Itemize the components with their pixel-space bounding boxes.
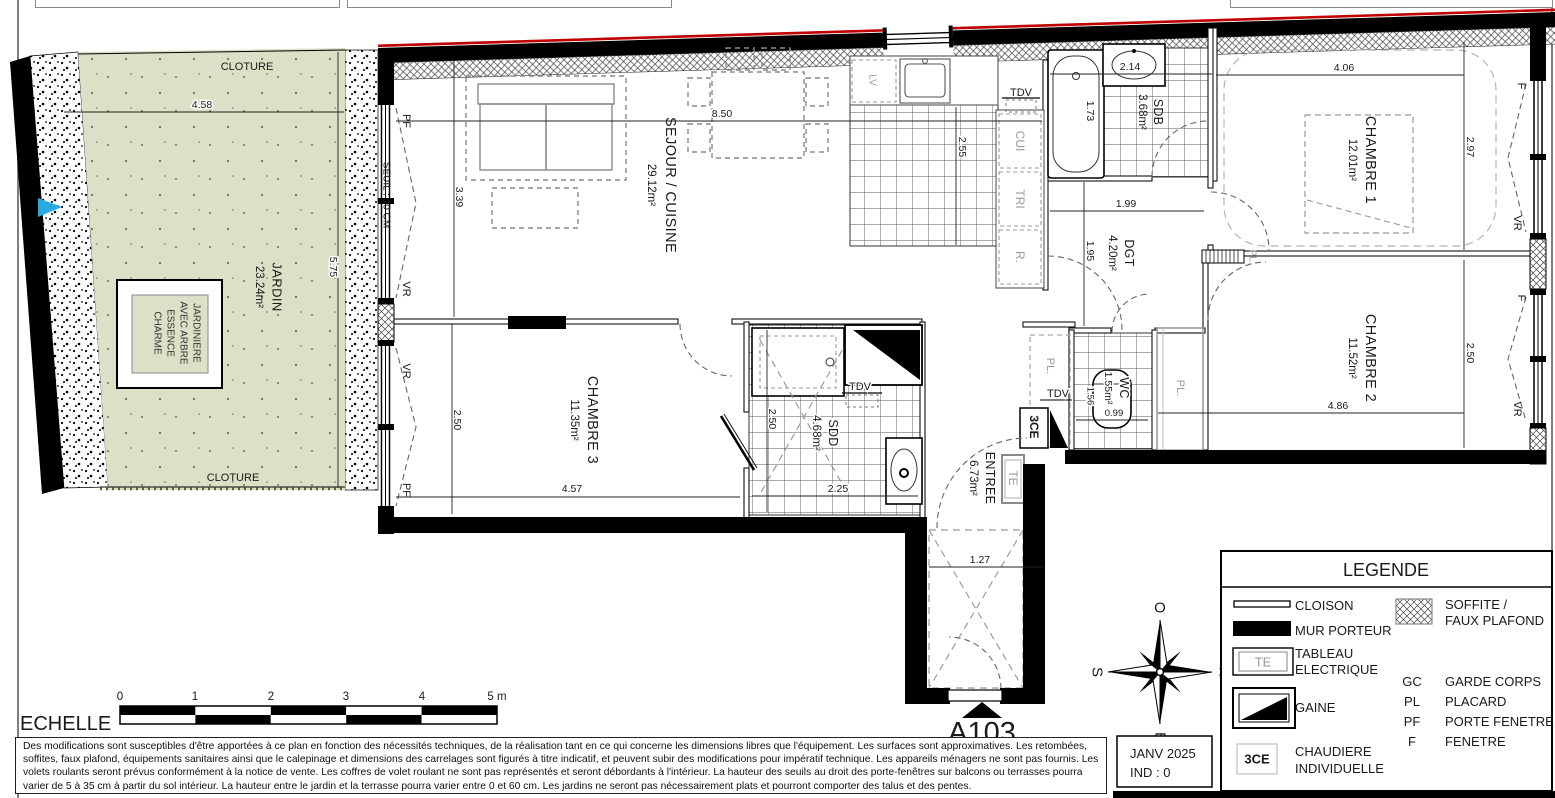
titleblock: JANV 2025 IND : 0 — [1117, 736, 1212, 787]
room-ch3-area: 11.35m² — [568, 399, 580, 441]
room-entree-area: 6.73m² — [967, 460, 979, 496]
pl-label-ch2: PL. — [1174, 380, 1186, 397]
legend-gaine-label: GAINE — [1295, 700, 1336, 715]
cui-label: CUI — [1013, 131, 1027, 152]
pf-label-1: PF — [400, 114, 412, 128]
room-wc: WC — [1117, 377, 1131, 398]
tdv-label-3: TDV — [1047, 388, 1070, 400]
dim-ch2-h: 2.50 — [1464, 343, 1476, 364]
garden — [10, 48, 378, 494]
gaine-wedge — [1050, 410, 1068, 448]
dim-sejour-h: 3.39 — [453, 187, 465, 208]
legend-chaudiere-line2: INDIVIDUELLE — [1295, 761, 1384, 776]
room-jardin: JARDIN — [270, 262, 285, 311]
floorplan-drawing: CLOTURE CLOTURE 4.58 5.75 JARDIN 23.24m²… — [0, 0, 1555, 798]
tdv-label-1: TDV — [1010, 87, 1033, 99]
dim-ch3-w: 4.57 — [562, 483, 583, 495]
vr-label-4: VR — [1511, 401, 1523, 416]
dim-ch3-h: 2.50 — [451, 410, 463, 431]
dim-ch1-h: 2.97 — [1464, 137, 1476, 158]
planter-line1: JARDINIERE — [191, 303, 202, 363]
room-sejour: SEJOUR / CUISINE — [662, 117, 678, 253]
titleblock-index: IND : 0 — [1130, 765, 1170, 780]
room-dgt: DGT — [1122, 239, 1136, 266]
f-label-2: F — [1515, 295, 1527, 302]
top-toolbar-fragment-3 — [1230, 0, 1553, 8]
legend-soffite-line1: SOFFITE / — [1445, 597, 1508, 612]
vr-label-1: VR — [400, 281, 412, 296]
scale-tick-3: 3 — [343, 691, 349, 703]
room-ch2-area: 11.52m² — [1346, 337, 1358, 379]
legend-mur-symbol — [1233, 621, 1291, 636]
ch1-ceiling-outline — [1224, 50, 1496, 246]
compass-rose-icon: O N E S — [1089, 600, 1233, 743]
tri-label: TRI — [1013, 189, 1027, 208]
dimension-lines — [396, 42, 1464, 567]
legend-te-symbol-text: TE — [1255, 655, 1272, 670]
room-wc-area: 1.55m² — [1102, 372, 1114, 405]
r-label: R. — [1013, 251, 1027, 263]
cloture-bottom-label: CLOTURE — [207, 472, 260, 484]
legend-abbr-pl: PL — [1404, 694, 1420, 709]
dim-bath: 1.73 — [1084, 101, 1096, 122]
te-label: TE — [1006, 470, 1020, 485]
entry-arrow-icon — [962, 702, 1002, 718]
dim-wc-h: 1.56 — [1085, 387, 1096, 406]
scale-tick-5: 5 m — [487, 691, 506, 703]
pl-label-entree: PL. — [1044, 358, 1056, 375]
top-toolbar-fragment-1 — [35, 0, 340, 8]
room-entree: ENTREE — [983, 452, 997, 505]
dim-wc-w: 0.99 — [1105, 408, 1124, 419]
seuil-label: SEUIL : 10 CM — [381, 162, 392, 228]
room-sdd: SDD — [826, 419, 840, 446]
entry-door-threshold — [948, 690, 1002, 701]
dim-garden-width: 4.58 — [192, 99, 213, 111]
dim-hall-w: 1.27 — [970, 554, 991, 566]
planter-line4: CHARME — [152, 311, 163, 355]
room-sdb: SDB — [1151, 99, 1165, 126]
kitchen-floor — [850, 104, 998, 246]
room-ch2: CHAMBRE 2 — [1362, 314, 1378, 402]
scale-tick-2: 2 — [268, 691, 274, 703]
legend-tableau-line2: ELECTRIQUE — [1295, 662, 1378, 677]
legend-abbr-pf: PF — [1404, 714, 1421, 729]
legend-abbr-gc-label: GARDE CORPS — [1445, 674, 1541, 689]
f-label-1: F — [1515, 83, 1527, 90]
scale-label: ECHELLE — [20, 713, 111, 735]
dim-dgt-w: 1.99 — [1116, 198, 1137, 210]
legend-abbr-pl-label: PLACARD — [1445, 694, 1506, 709]
legend-soffite-line2: FAUX PLAFOND — [1445, 613, 1544, 628]
dim-sdb-w: 2.14 — [1120, 61, 1141, 73]
legend-cloison-label: CLOISON — [1295, 598, 1354, 613]
legend-abbr-f: F — [1408, 734, 1416, 749]
legend-abbr-f-label: FENETRE — [1445, 734, 1506, 749]
room-sdb-area: 3.68m² — [1136, 94, 1148, 130]
legend-chaudiere-line1: CHAUDIERE — [1295, 744, 1372, 759]
legend-tableau-line1: TABLEAU — [1295, 646, 1353, 661]
scale-tick-0: 0 — [117, 691, 123, 703]
gravel-band-right — [345, 50, 378, 490]
titleblock-date: JANV 2025 — [1130, 746, 1196, 761]
dim-garden-height: 5.75 — [327, 257, 339, 278]
dim-dgt-h: 1.95 — [1084, 241, 1096, 262]
scale-bar: ECHELLE 0 1 2 3 4 5 m — [20, 691, 507, 735]
dim-cuisine-h: 2.55 — [956, 137, 968, 158]
ce3-label: 3CE — [1027, 415, 1041, 438]
dim-sdd-w: 2.25 — [828, 483, 849, 495]
scale-tick-4: 4 — [419, 691, 426, 703]
disclaimer-note: Des modifications sont susceptibles d'êt… — [15, 737, 1107, 794]
planter-line2: AVEC ARBRE — [178, 301, 189, 364]
room-ch1-area: 12.01m² — [1346, 139, 1358, 181]
wall-header — [508, 316, 566, 329]
cloture-top-label: CLOTURE — [221, 61, 274, 73]
room-sdd-area: 4.68m² — [810, 415, 822, 451]
compass-south: S — [1089, 667, 1106, 677]
compass-west: O — [1154, 600, 1166, 617]
coffee-table — [492, 188, 578, 228]
room-dgt-area: 4.20m² — [1106, 235, 1118, 271]
pl-label-dgt: PL. — [1247, 249, 1258, 264]
vr-label-2: VR — [400, 363, 412, 378]
room-sejour-area: 29.12m² — [645, 164, 657, 206]
top-toolbar-fragment-2 — [347, 0, 672, 8]
room-ch3: CHAMBRE 3 — [584, 376, 600, 464]
room-ch1: CHAMBRE 1 — [1362, 116, 1378, 204]
lv-label: LV — [867, 74, 878, 86]
dim-sejour-w: 8.50 — [712, 108, 733, 120]
legend-title: LEGENDE — [1343, 560, 1429, 580]
vr-label-3: VR — [1511, 215, 1523, 230]
legend-soffite-symbol — [1396, 599, 1432, 624]
dim-ch2-w: 4.86 — [1328, 400, 1349, 412]
legend-3ce-symbol-text: 3CE — [1244, 752, 1270, 767]
dim-sdd-h: 2.50 — [766, 409, 778, 430]
legend-cloison-symbol — [1234, 601, 1290, 607]
pf-label-2: PF — [400, 483, 412, 497]
ch1-bed — [1305, 115, 1413, 233]
room-jardin-area: 23.24m² — [253, 266, 265, 308]
planter-line3: ESSENCE — [165, 309, 176, 357]
legend-mur-label: MUR PORTEUR — [1295, 623, 1392, 638]
legend-abbr-pf-label: PORTE FENETRE — [1445, 714, 1554, 729]
floorplan-page: CLOTURE CLOTURE 4.58 5.75 JARDIN 23.24m²… — [0, 0, 1555, 798]
legend-abbr-gc: GC — [1402, 674, 1422, 689]
legend: LEGENDE CLOISON MUR PORTEUR TE TABLEAU E… — [1221, 551, 1554, 791]
scale-tick-1: 1 — [192, 691, 198, 703]
dim-ch1-w: 4.06 — [1334, 62, 1355, 74]
tdv-label-2: TDV — [849, 381, 872, 393]
